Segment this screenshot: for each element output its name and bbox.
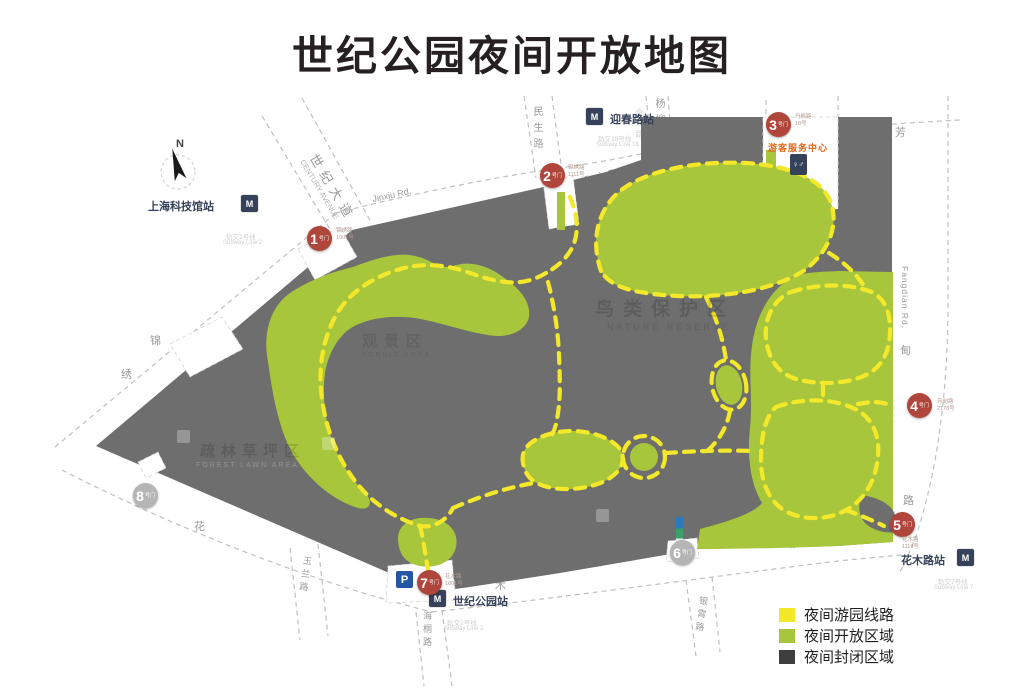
gate-5-address-no: 1119号 xyxy=(902,544,919,551)
compass xyxy=(161,147,195,189)
gate-3-address: 丹枫路 18号 xyxy=(795,114,812,127)
station-name-yingchun: 迎春路站 xyxy=(610,111,654,127)
toilet-icon[interactable]: ♀♂ xyxy=(790,154,807,175)
legend-label-open: 夜间开放区域 xyxy=(804,625,894,646)
gate-3-marker[interactable]: 3号门 xyxy=(766,112,791,137)
gate-1-suffix: 号门 xyxy=(319,235,329,242)
gate-6-number: 6 xyxy=(673,546,681,560)
area-label-forest-lawn-en: FOREST LAWN AREA xyxy=(196,462,299,469)
gate-6-suffix: 号门 xyxy=(682,549,692,556)
gate-1-number: 1 xyxy=(310,232,318,246)
legend-row-closed: 夜间封闭区域 xyxy=(779,646,894,667)
legend-row-route: 夜间游园线路 xyxy=(779,604,894,625)
station-name-science-museum: 上海科技馆站 xyxy=(148,198,214,214)
gate-2-address-road: 锦绣路 xyxy=(568,165,585,172)
gate-5-suffix: 号门 xyxy=(902,521,912,528)
area-label-scenic-en: SCENIC AREA xyxy=(362,352,431,359)
legend-label-route: 夜间游园线路 xyxy=(804,604,894,625)
gate-7-suffix: 号门 xyxy=(429,579,439,586)
map-canvas: 世纪公园夜间开放地图 xyxy=(0,0,1024,688)
metro-icon-science-museum[interactable]: M xyxy=(240,194,259,213)
station-line-en-huamu-road: Subway Line 7 xyxy=(934,585,973,591)
gate-7-address-road: 花木路 xyxy=(445,574,463,581)
legend-swatch-open xyxy=(779,629,795,643)
metro-icon-yingchun[interactable]: M xyxy=(585,107,604,126)
visitor-service-center-label: 游客服务中心 xyxy=(768,141,828,154)
gate-7-number: 7 xyxy=(420,576,428,590)
gate-4-number: 4 xyxy=(910,399,918,413)
station-line-en-yingchun: Subway Line 18 xyxy=(596,142,639,148)
legend-label-closed: 夜间封闭区域 xyxy=(804,646,894,667)
park-map-graphic xyxy=(0,0,1024,688)
gate-7-address-no: 1001号 xyxy=(445,581,463,588)
gate-1-address-no: 1001号 xyxy=(336,235,354,242)
gate-2-address-no: 1111号 xyxy=(568,172,585,179)
area-label-forest-lawn-cn: 疏林草坪区 xyxy=(200,440,305,461)
faint-facility-icon-2 xyxy=(322,437,335,450)
faint-facility-icon-3 xyxy=(596,509,609,522)
gate-8-marker[interactable]: 8号门 xyxy=(133,483,158,508)
area-label-scenic-cn: 观景区 xyxy=(362,330,428,351)
gate-5-number: 5 xyxy=(893,518,901,532)
gate-8-suffix: 号门 xyxy=(145,492,155,499)
metro-icon-huamu-road[interactable]: M xyxy=(956,548,975,567)
gate-4-address: 芳甸路 2178号 xyxy=(937,399,955,412)
gate-2-address: 锦绣路 1111号 xyxy=(568,165,585,178)
gate-4-suffix: 号门 xyxy=(919,402,929,409)
area-label-bird-reserve-en: NATURE RESERVE xyxy=(607,322,731,332)
station-name-century-park: 世纪公园站 xyxy=(453,593,508,609)
gate-5-address-road: 花木路 xyxy=(902,537,919,544)
gate-3-suffix: 号门 xyxy=(778,121,788,128)
gate-1-address-road: 锦绣路 xyxy=(336,228,354,235)
legend-swatch-closed xyxy=(779,650,795,664)
gate-2-number: 2 xyxy=(543,169,551,183)
open-area-islet xyxy=(630,443,658,471)
gate-6-marker[interactable]: 6号门 xyxy=(670,540,695,565)
gate-5-marker[interactable]: 5号门 xyxy=(890,512,915,537)
gate-8-number: 8 xyxy=(136,489,144,503)
gate-5-address: 花木路 1119号 xyxy=(902,537,919,550)
gate-3-number: 3 xyxy=(769,118,777,132)
area-label-bird-reserve-cn: 鸟类保护区 xyxy=(595,294,735,321)
gate-1-address: 锦绣路 1001号 xyxy=(336,228,354,241)
legend-row-open: 夜间开放区域 xyxy=(779,625,894,646)
parking-icon[interactable]: P xyxy=(396,571,413,588)
station-line-en-century-park: Subway Line 2 xyxy=(444,626,483,632)
gate-3-address-road: 丹枫路 xyxy=(795,114,812,121)
gate-1-marker[interactable]: 1号门 xyxy=(307,226,332,251)
gate-7-address: 花木路 1001号 xyxy=(445,574,463,587)
faint-facility-icon-1 xyxy=(177,430,190,443)
gate-3-address-no: 18号 xyxy=(795,121,812,128)
gate-4-address-no: 2178号 xyxy=(937,406,955,413)
gate-2-marker[interactable]: 2号门 xyxy=(540,163,565,188)
gate-4-address-road: 芳甸路 xyxy=(937,399,955,406)
station-line-en-science-museum: Subway Line 2 xyxy=(223,240,262,246)
gate-2-suffix: 号门 xyxy=(552,172,562,179)
legend: 夜间游园线路 夜间开放区域 夜间封闭区域 xyxy=(779,604,894,667)
station-name-huamu-road: 花木路站 xyxy=(901,552,945,568)
gate-7-marker[interactable]: 7号门 xyxy=(417,570,442,595)
legend-swatch-route xyxy=(779,608,795,622)
gate-4-marker[interactable]: 4号门 xyxy=(907,393,932,418)
